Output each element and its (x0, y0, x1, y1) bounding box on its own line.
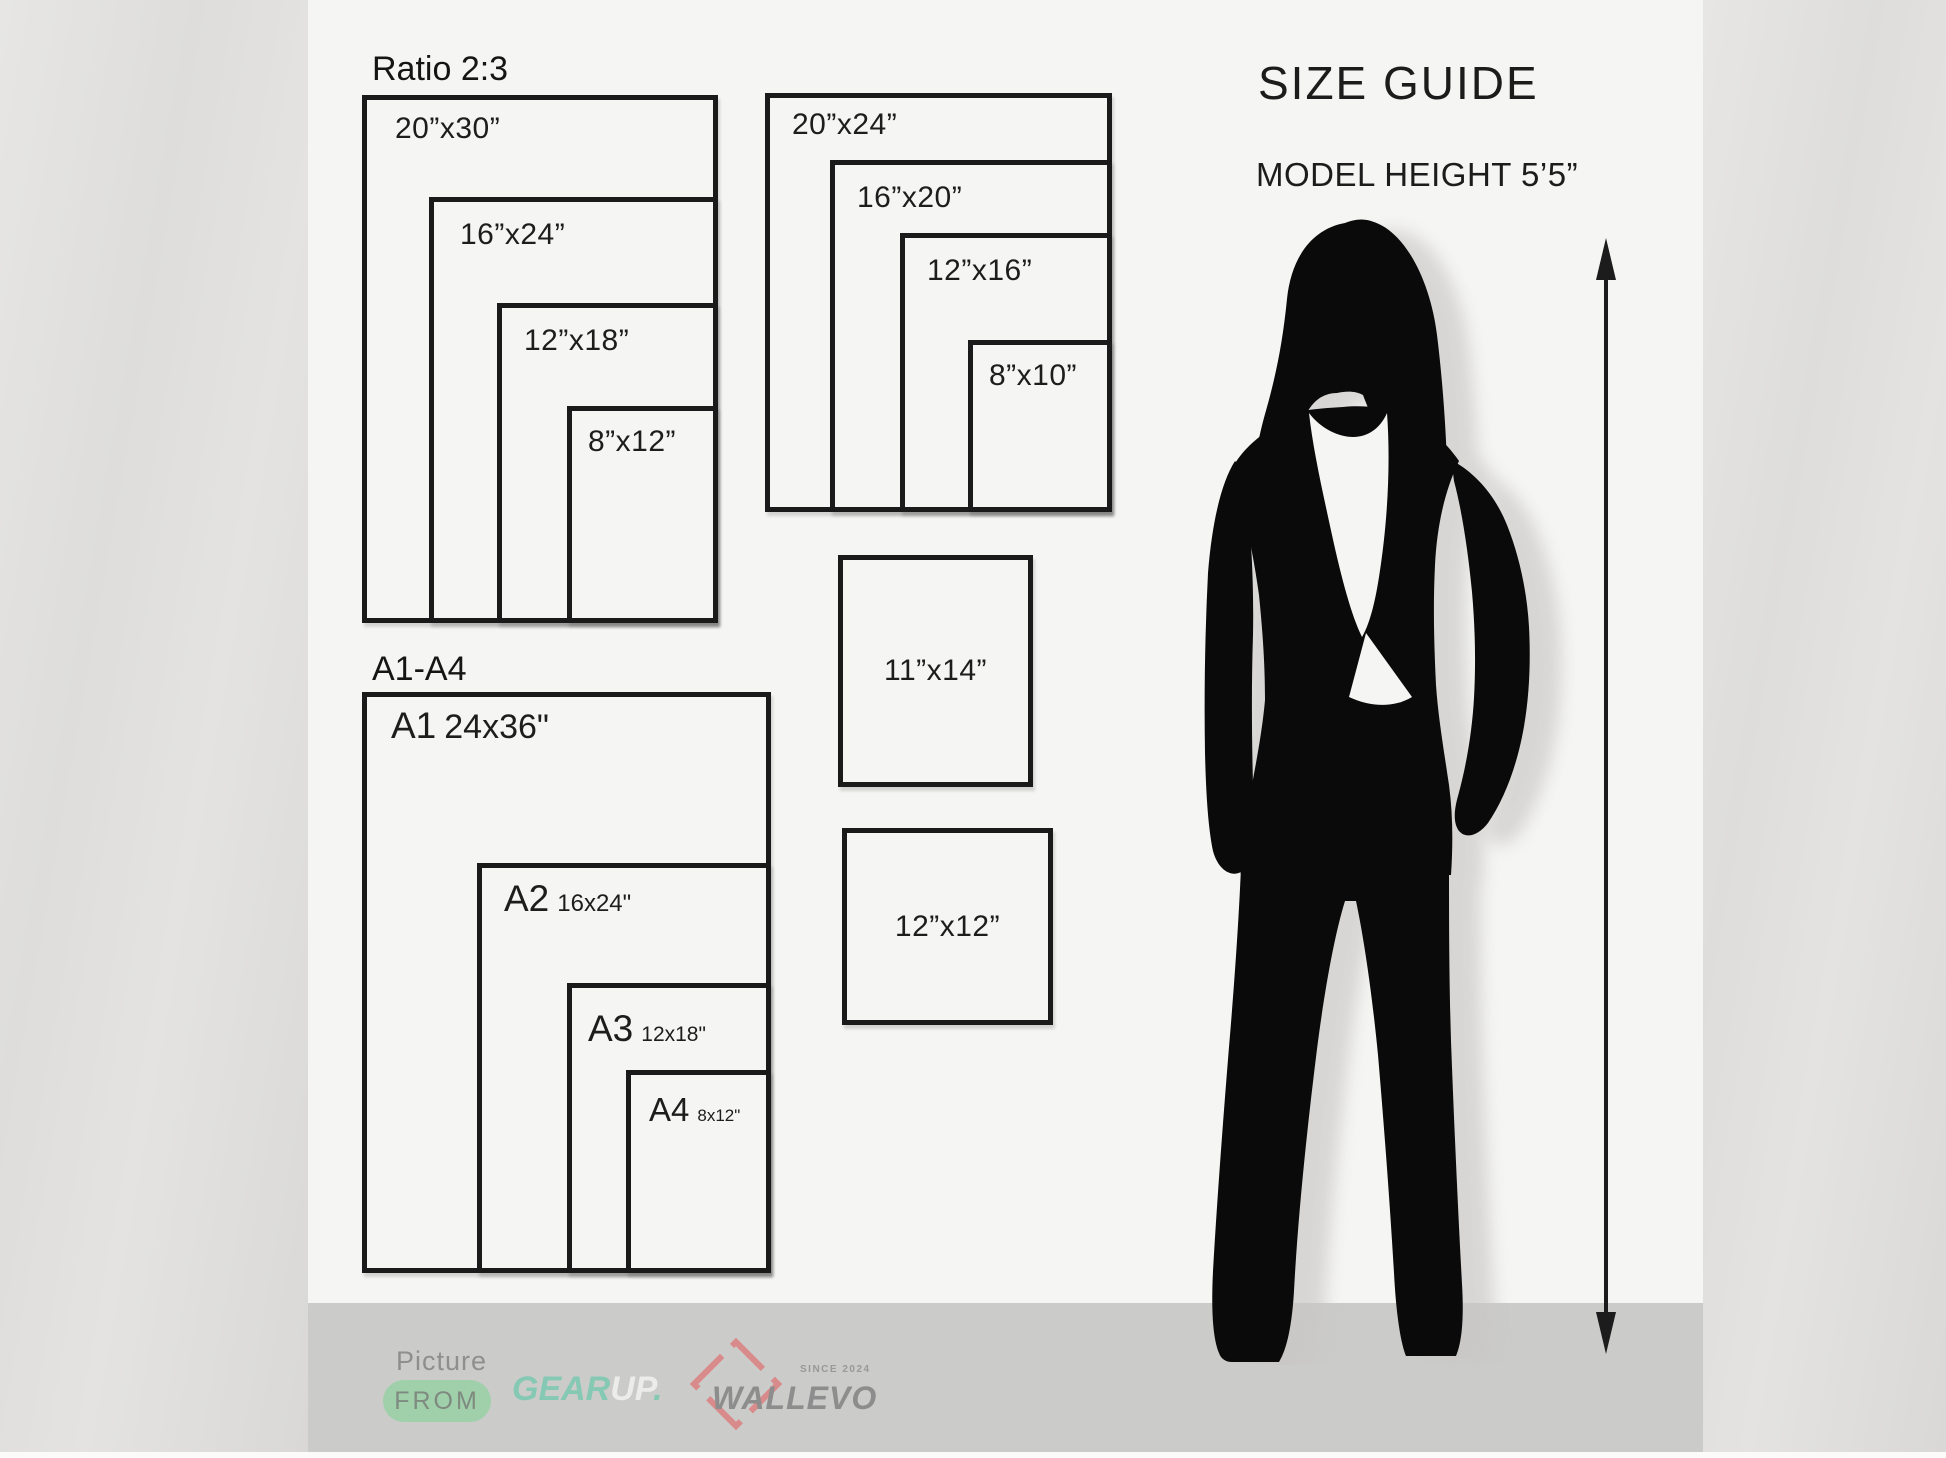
frame-16x24-label: 16”x24” (460, 218, 565, 252)
frame-a2-label: A2 16x24" (504, 878, 631, 920)
wallevo-since-label: SINCE 2024 (800, 1364, 871, 1375)
frame-a1-size: 24x36" (444, 708, 549, 747)
frame-a4-name: A4 (649, 1091, 689, 1129)
size-guide-infographic: Ratio 2:3 20”x30” 16”x24” 12”x18” 8”x12”… (0, 0, 1946, 1458)
frame-11x14: 11”x14” (838, 555, 1033, 787)
picture-label: Picture (396, 1346, 487, 1377)
frame-a3-label: A3 12x18" (588, 1008, 706, 1050)
frame-a3-name: A3 (588, 1008, 633, 1050)
frame-12x16-label: 12”x16” (927, 254, 1032, 288)
frame-16x20-label: 16”x20” (857, 181, 962, 215)
frame-8x10-label: 8”x10” (989, 359, 1077, 393)
frame-a2-name: A2 (504, 878, 549, 920)
gearup-logo-dot: . (653, 1370, 662, 1408)
frame-20x30-label: 20”x30” (395, 112, 500, 146)
height-arrow-top-icon (1596, 238, 1616, 280)
silhouette-left-arm (1205, 461, 1255, 874)
frame-8x12-label: 8”x12” (588, 425, 676, 459)
frame-a2-size: 16x24" (557, 890, 631, 918)
from-badge-label: FROM (394, 1387, 480, 1416)
bottom-sliver (0, 1452, 1946, 1458)
gearup-logo: GEARUP. (512, 1370, 663, 1409)
gearup-logo-up: UP (610, 1370, 653, 1408)
a-series-heading: A1-A4 (372, 650, 467, 689)
model-silhouette (1195, 215, 1575, 1365)
frame-12x12-label: 12”x12” (847, 833, 1048, 1020)
frame-a3-size: 12x18" (641, 1023, 706, 1047)
height-arrow-bottom-icon (1596, 1312, 1616, 1354)
frame-a4-size: 8x12" (697, 1106, 740, 1126)
right-texture-margin (1703, 0, 1946, 1458)
gearup-logo-gear: GEAR (512, 1370, 610, 1408)
ratio-group-heading: Ratio 2:3 (372, 50, 508, 89)
frame-12x18-label: 12”x18” (524, 324, 629, 358)
frame-20x24-label: 20”x24” (792, 108, 897, 142)
wallevo-logo: WALLEVO (712, 1380, 877, 1417)
height-arrow (1584, 236, 1628, 1356)
page-title: SIZE GUIDE (1258, 56, 1539, 110)
frame-a1-label: A1 24x36" (391, 705, 549, 747)
frame-8x12: 8”x12” (567, 406, 718, 623)
frame-8x10: 8”x10” (968, 340, 1112, 512)
frame-a4-label: A4 8x12" (649, 1091, 740, 1129)
left-texture-margin (0, 0, 308, 1458)
model-height-label: MODEL HEIGHT 5’5” (1256, 156, 1578, 194)
from-badge: FROM (383, 1380, 491, 1422)
frame-a1-name: A1 (391, 705, 436, 747)
frame-12x12: 12”x12” (842, 828, 1053, 1025)
frame-a4: A4 8x12" (626, 1070, 771, 1273)
frame-11x14-label: 11”x14” (843, 560, 1028, 782)
